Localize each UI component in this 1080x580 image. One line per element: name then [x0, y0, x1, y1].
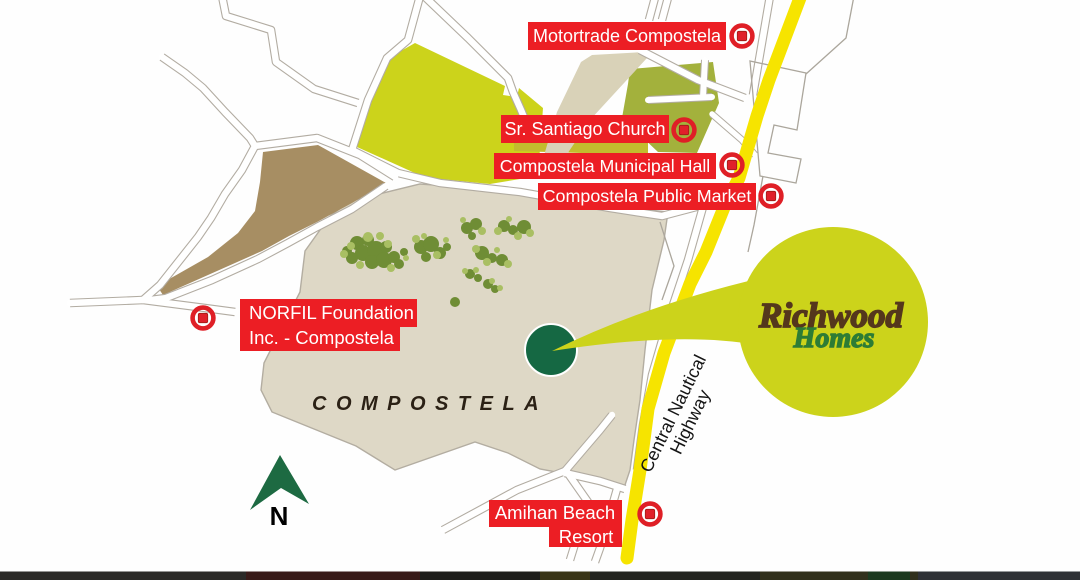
svg-text:NORFIL Foundation: NORFIL Foundation [249, 302, 414, 323]
svg-text:Resort: Resort [559, 526, 614, 547]
svg-text:Compostela Public Market: Compostela Public Market [543, 186, 752, 206]
svg-text:Compostela Municipal Hall: Compostela Municipal Hall [500, 156, 711, 176]
svg-text:Sr. Santiago Church: Sr. Santiago Church [504, 119, 665, 139]
svg-text:Amihan Beach: Amihan Beach [495, 502, 615, 523]
svg-text:Homes: Homes [793, 323, 875, 354]
svg-text:N: N [270, 501, 289, 531]
svg-text:Motortrade Compostela: Motortrade Compostela [533, 26, 722, 46]
svg-text:COMPOSTELA: COMPOSTELA [312, 393, 548, 415]
svg-text:Inc. - Compostela: Inc. - Compostela [249, 327, 395, 348]
